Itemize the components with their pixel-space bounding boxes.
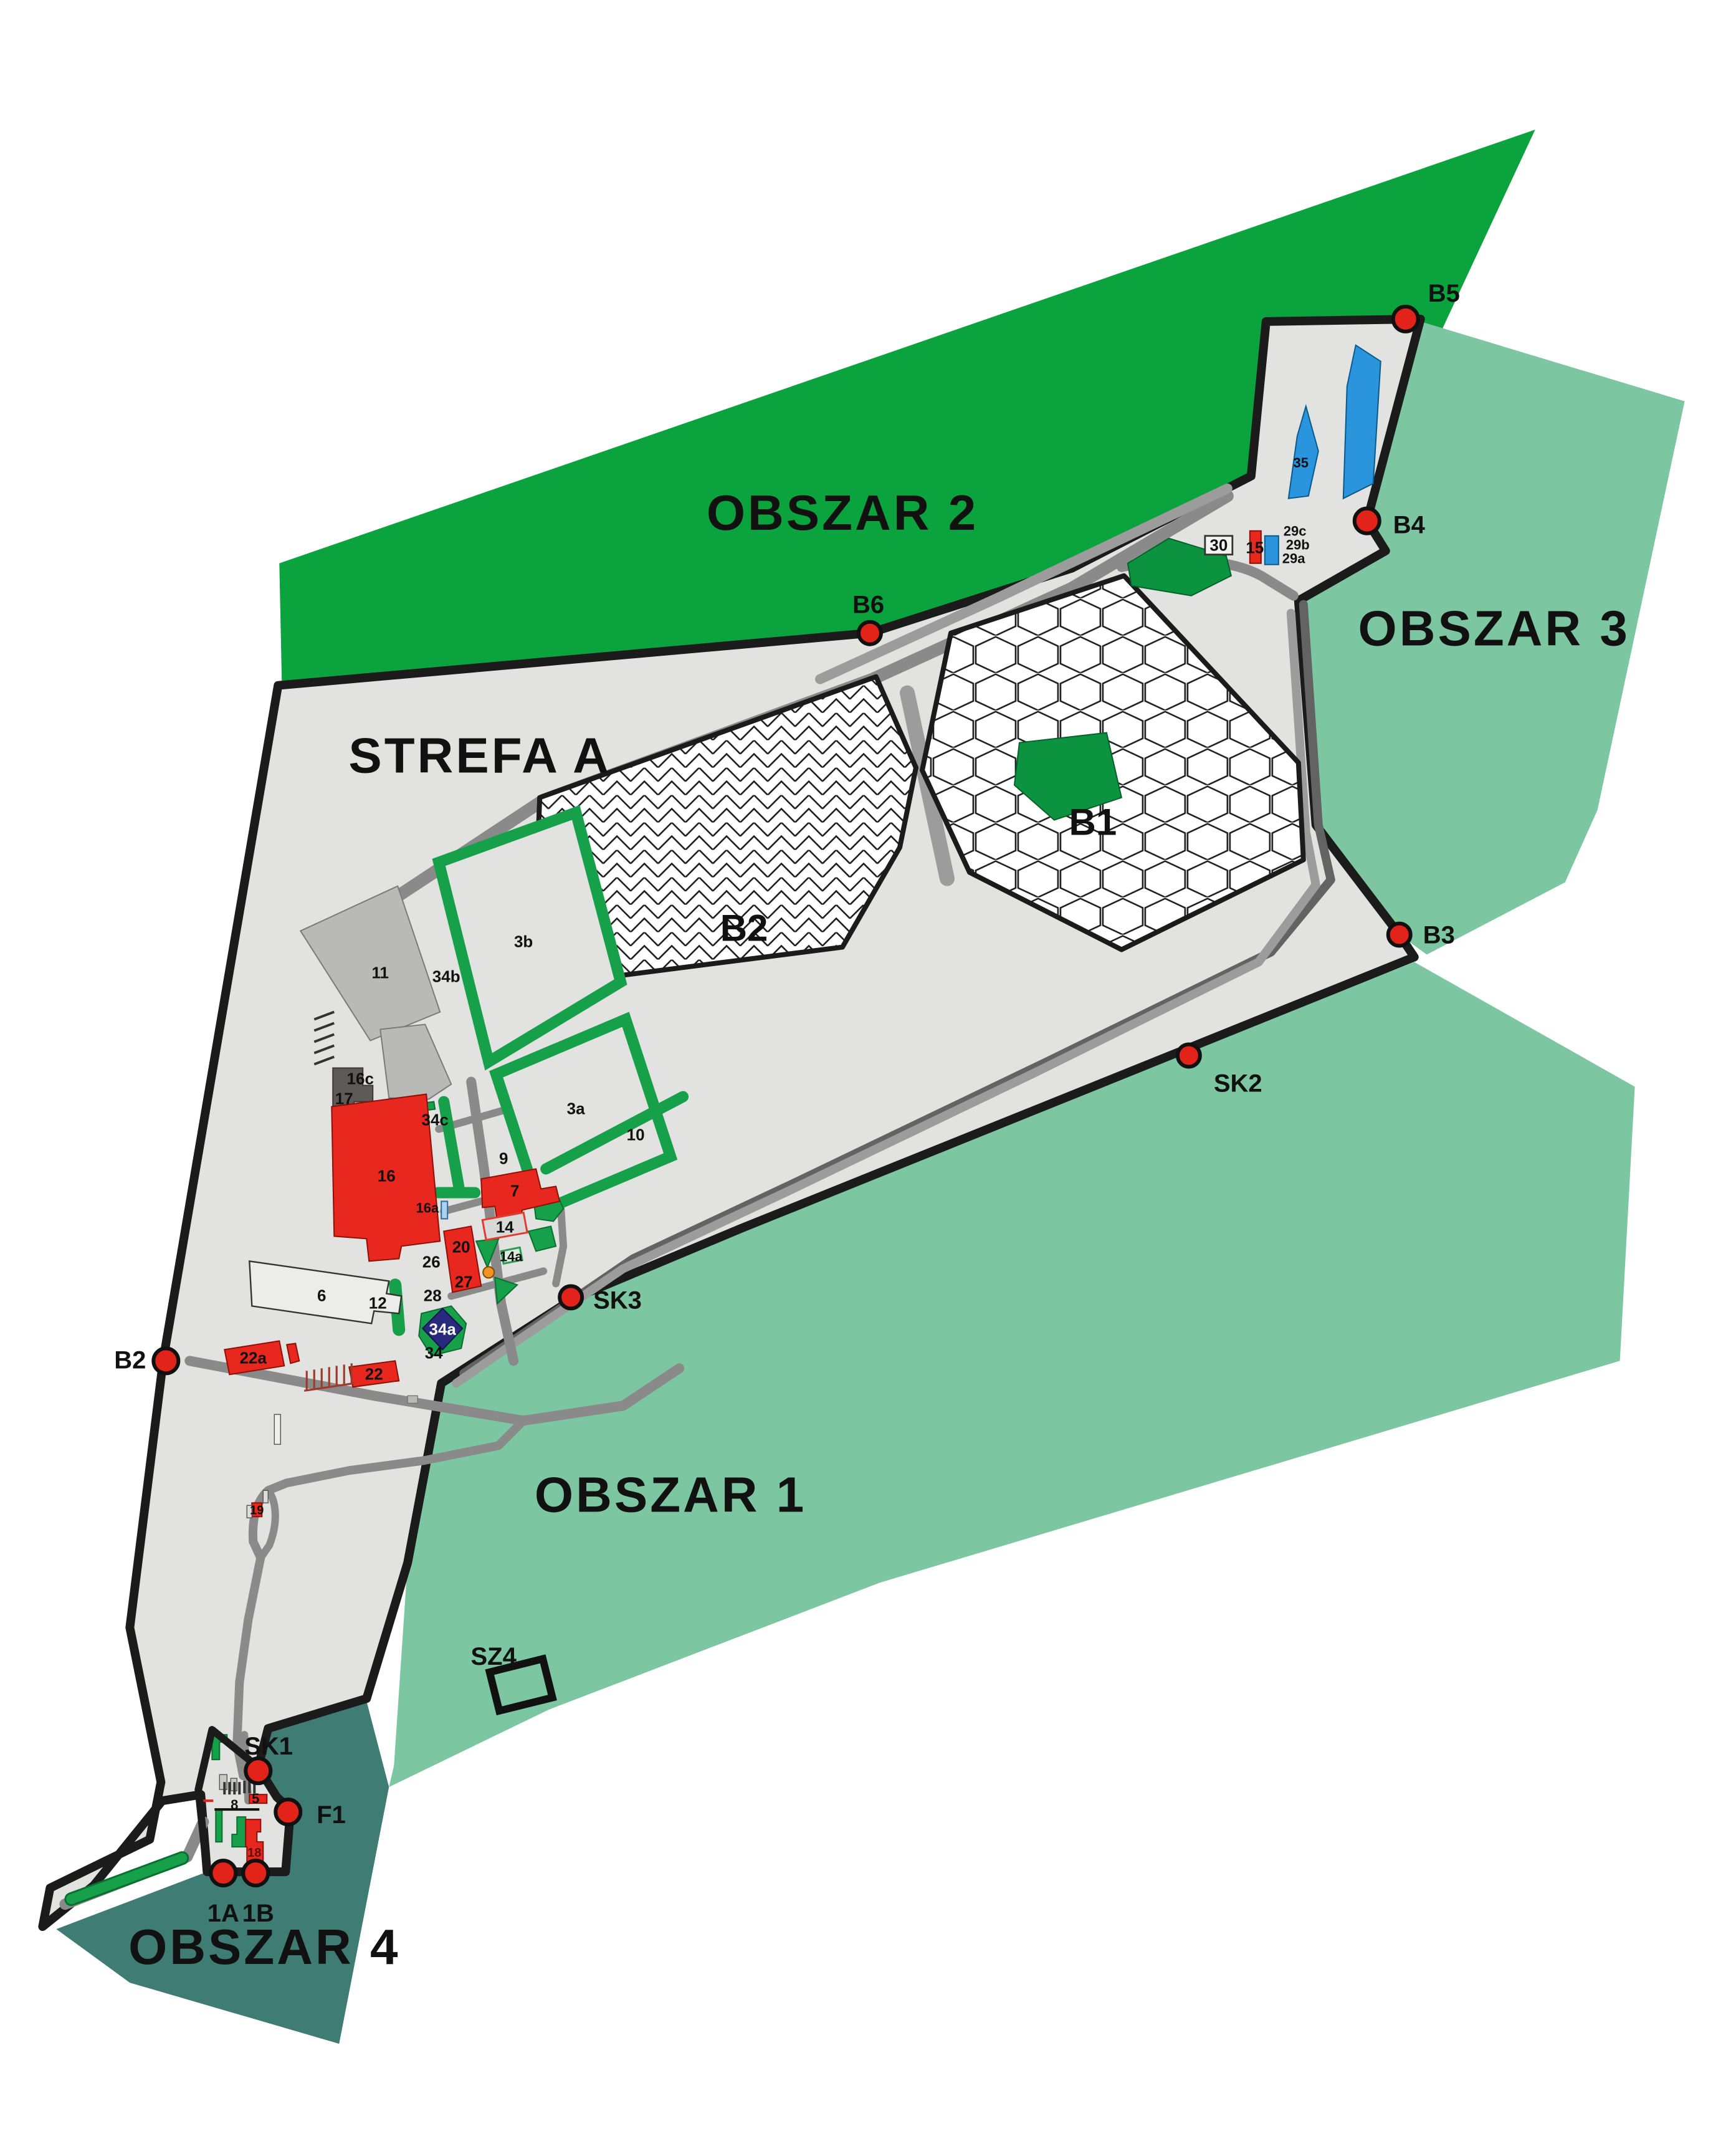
- zoning-map: OBSZAR 2 OBSZAR 3 OBSZAR 1 OBSZAR 4 STRE…: [0, 0, 1736, 2131]
- shed-near-22: [408, 1396, 417, 1403]
- label-b7: 7: [510, 1181, 519, 1200]
- marker-1a: [211, 1860, 236, 1885]
- label-b14: 14: [496, 1217, 514, 1236]
- label-strefa-a: STREFA A: [348, 728, 611, 783]
- site-map-page: OBSZAR 2 OBSZAR 3 OBSZAR 1 OBSZAR 4 STRE…: [0, 0, 1736, 2131]
- marker-sk1: [246, 1758, 270, 1783]
- label-marker-b2: B2: [114, 1346, 146, 1374]
- label-b3a: 3a: [567, 1099, 585, 1118]
- label-b19: 19: [250, 1503, 264, 1517]
- label-b9: 9: [499, 1149, 508, 1167]
- label-sz4: SZ4: [471, 1643, 517, 1670]
- label-b29a: 29a: [1282, 551, 1305, 567]
- label-plot-b2: B2: [720, 907, 768, 949]
- label-marker-1a: 1A: [207, 1900, 239, 1927]
- marker-f1: [275, 1799, 300, 1824]
- label-b22: 22: [365, 1364, 383, 1383]
- marker-b4: [1355, 509, 1380, 534]
- label-b14a: 14a: [500, 1248, 523, 1264]
- marker-b6: [859, 622, 881, 644]
- label-marker-sk1: SK1: [244, 1733, 293, 1760]
- marker-b5: [1393, 307, 1418, 332]
- label-marker-b3: B3: [1423, 922, 1455, 949]
- label-b18: 18: [247, 1846, 261, 1860]
- label-obszar-3: OBSZAR 3: [1358, 601, 1630, 656]
- label-b26: 26: [422, 1252, 441, 1271]
- label-marker-sk2: SK2: [1214, 1070, 1262, 1097]
- label-marker-1b: 1B: [242, 1900, 274, 1927]
- orange-point: [483, 1267, 494, 1278]
- label-b17: 17: [335, 1089, 353, 1108]
- building-29a: [1265, 536, 1279, 565]
- marker-b2: [153, 1348, 178, 1373]
- label-obszar-4: OBSZAR 4: [128, 1919, 400, 1975]
- marker-b3: [1388, 924, 1411, 946]
- label-b30: 30: [1209, 536, 1228, 555]
- label-marker-sk3: SK3: [593, 1286, 642, 1314]
- shed-19-north: [263, 1490, 268, 1503]
- building-16a: [441, 1201, 447, 1219]
- label-marker-b4: B4: [1393, 512, 1426, 539]
- label-marker-f1: F1: [317, 1801, 346, 1829]
- label-marker-b6: B6: [852, 591, 884, 619]
- label-b34b: 34b: [432, 967, 460, 986]
- label-b35: 35: [1294, 455, 1309, 471]
- label-marker-b5: B5: [1428, 280, 1460, 307]
- label-b16: 16: [378, 1166, 396, 1185]
- label-b28: 28: [424, 1286, 442, 1305]
- label-b6: 6: [317, 1286, 326, 1305]
- label-b8: 8: [231, 1797, 238, 1813]
- label-b12: 12: [369, 1293, 387, 1312]
- label-b34: 34: [425, 1343, 443, 1362]
- label-b11: 11: [371, 964, 388, 982]
- label-obszar-1: OBSZAR 1: [535, 1467, 806, 1522]
- label-b10: 10: [627, 1125, 645, 1144]
- label-obszar-2: OBSZAR 2: [707, 485, 978, 540]
- label-b27: 27: [455, 1272, 473, 1291]
- label-b3b: 3b: [514, 932, 533, 951]
- label-b34a: 34a: [429, 1319, 457, 1338]
- shed-encl-1: [219, 1774, 227, 1789]
- marker-sk3: [560, 1286, 582, 1308]
- label-plot-b1: B1: [1069, 802, 1117, 843]
- marker-1b: [243, 1860, 268, 1885]
- strip-white: [274, 1414, 280, 1444]
- marker-sk2: [1178, 1045, 1200, 1067]
- label-b15: 15: [1246, 539, 1264, 557]
- label-b5s: 5: [252, 1791, 259, 1806]
- green-encl-bar: [216, 1809, 222, 1842]
- label-b20: 20: [452, 1237, 470, 1256]
- label-b16c: 16c: [347, 1069, 374, 1088]
- label-b22a: 22a: [240, 1348, 267, 1367]
- label-b16a: 16a: [416, 1200, 439, 1215]
- label-b34c: 34c: [422, 1110, 449, 1129]
